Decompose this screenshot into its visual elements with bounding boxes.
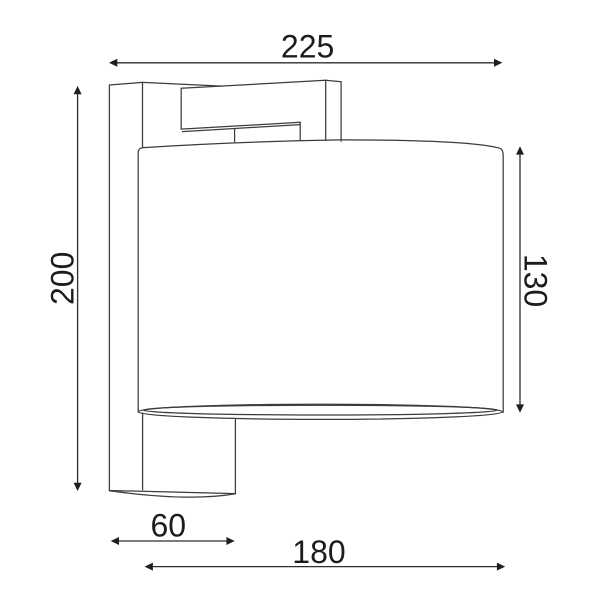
svg-text:60: 60	[151, 508, 187, 544]
svg-text:225: 225	[281, 29, 334, 65]
svg-text:180: 180	[292, 534, 345, 570]
svg-text:130: 130	[518, 254, 554, 307]
svg-text:200: 200	[45, 252, 81, 305]
